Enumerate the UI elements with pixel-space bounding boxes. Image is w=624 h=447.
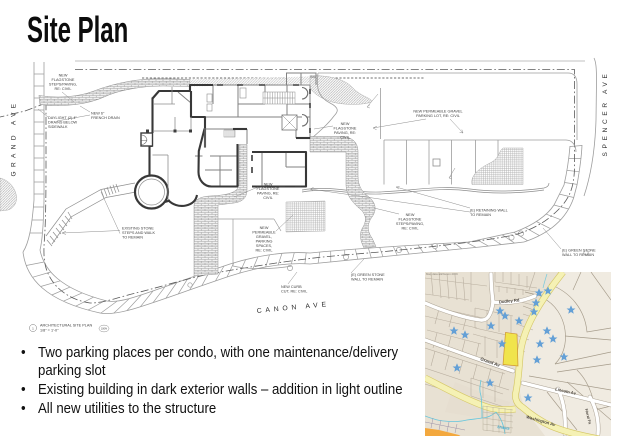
svg-text:Map data attribution 2009: Map data attribution 2009 bbox=[426, 272, 458, 276]
svg-text:NEW: NEW bbox=[341, 122, 350, 126]
svg-text:FLAGSTONE: FLAGSTONE bbox=[399, 218, 422, 222]
svg-text:TO REMAIN: TO REMAIN bbox=[470, 213, 491, 217]
svg-text:STEPS AND WALK: STEPS AND WALK bbox=[122, 231, 155, 235]
svg-text:100%: 100% bbox=[101, 328, 108, 331]
svg-text:1: 1 bbox=[32, 326, 34, 330]
svg-text:(E) RETAINING WALL: (E) RETAINING WALL bbox=[470, 209, 508, 213]
svg-text:PARKING LOT, RE: CIVIL: PARKING LOT, RE: CIVIL bbox=[416, 114, 460, 118]
svg-text:RE: CIVIL: RE: CIVIL bbox=[402, 227, 419, 231]
svg-text:STEPS/PAVING,: STEPS/PAVING, bbox=[49, 83, 77, 87]
svg-text:TO REMAIN: TO REMAIN bbox=[122, 236, 143, 240]
svg-text:SPENCER AVE: SPENCER AVE bbox=[602, 70, 609, 156]
svg-text:PERMEABLE: PERMEABLE bbox=[252, 231, 276, 235]
svg-text:PAVING, RE:: PAVING, RE: bbox=[257, 192, 279, 196]
svg-text:GRAVEL,: GRAVEL, bbox=[256, 235, 272, 239]
svg-text:WALL TO REMAIN: WALL TO REMAIN bbox=[351, 278, 383, 282]
svg-text:NEW: NEW bbox=[406, 213, 415, 217]
svg-text:FLAGSTONE: FLAGSTONE bbox=[334, 127, 357, 131]
svg-text:SIDEWALK: SIDEWALK bbox=[48, 125, 68, 129]
svg-text:CUT, RE: CIVIL: CUT, RE: CIVIL bbox=[281, 290, 307, 294]
svg-text:(E) GREEN STONE: (E) GREEN STONE bbox=[562, 249, 596, 253]
svg-text:PARKING: PARKING bbox=[256, 240, 273, 244]
svg-text:ARCHITECTURAL SITE PLAN: ARCHITECTURAL SITE PLAN bbox=[40, 324, 92, 328]
svg-text:NEW: NEW bbox=[260, 226, 269, 230]
svg-text:CIVIL: CIVIL bbox=[340, 136, 350, 140]
svg-text:PAVING, RE:: PAVING, RE: bbox=[334, 131, 356, 135]
svg-text:FRENCH DRAIN: FRENCH DRAIN bbox=[91, 116, 120, 120]
svg-text:(E) GREEN STONE: (E) GREEN STONE bbox=[351, 273, 385, 277]
svg-text:CIVIL: CIVIL bbox=[263, 196, 273, 200]
svg-text:EXISTING STONE: EXISTING STONE bbox=[122, 227, 154, 231]
svg-text:NEW: NEW bbox=[264, 183, 273, 187]
svg-text:NEW 6": NEW 6" bbox=[91, 112, 105, 116]
svg-text:SPACES,: SPACES, bbox=[256, 244, 272, 248]
svg-text:RE: CIVIL: RE: CIVIL bbox=[55, 87, 72, 91]
svg-text:RE: CIVIL: RE: CIVIL bbox=[256, 249, 273, 253]
svg-text:GRAND AVE: GRAND AVE bbox=[11, 99, 18, 176]
svg-text:DAYLIGHT (2) 4": DAYLIGHT (2) 4" bbox=[48, 116, 77, 120]
svg-text:FLAGSTONE: FLAGSTONE bbox=[257, 187, 280, 191]
svg-text:NEW CURB: NEW CURB bbox=[281, 285, 302, 289]
svg-text:STEPS/PAVING,: STEPS/PAVING, bbox=[396, 222, 424, 226]
svg-text:WALL TO REMAIN: WALL TO REMAIN bbox=[562, 253, 594, 257]
svg-text:NEW PERMEABLE GRAVEL: NEW PERMEABLE GRAVEL bbox=[413, 110, 462, 114]
svg-text:FLAGSTONE: FLAGSTONE bbox=[52, 78, 75, 82]
svg-text:DRAINS BELOW: DRAINS BELOW bbox=[48, 121, 78, 125]
svg-text:1/8" = 1'-0": 1/8" = 1'-0" bbox=[40, 329, 59, 333]
svg-text:CANON AVE: CANON AVE bbox=[257, 301, 331, 315]
svg-text:NEW: NEW bbox=[59, 74, 68, 78]
